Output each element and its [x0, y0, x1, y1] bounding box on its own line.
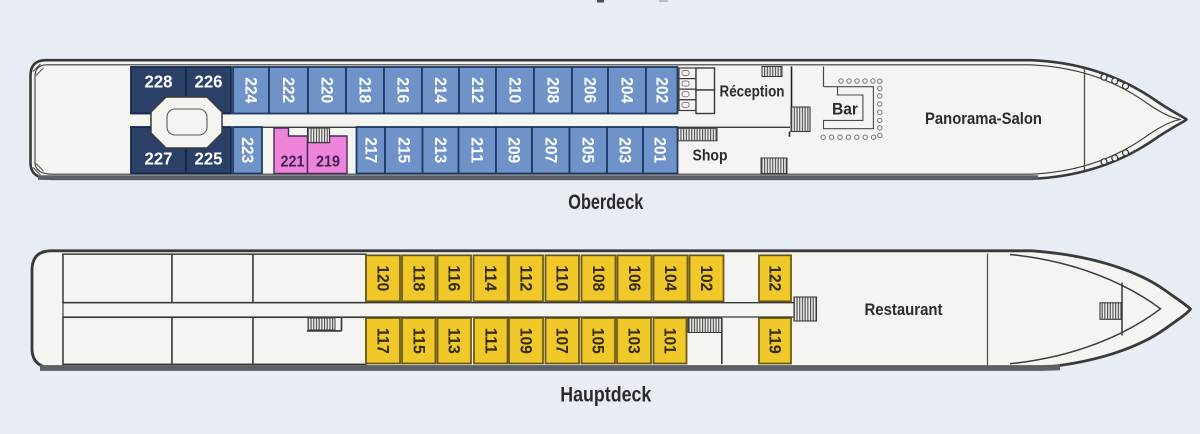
svg-text:119: 119	[766, 328, 785, 354]
svg-text:Oberdeck: Oberdeck	[568, 191, 643, 214]
svg-text:206: 206	[581, 77, 600, 103]
svg-text:203: 203	[616, 137, 635, 163]
svg-text:222: 222	[279, 77, 298, 103]
svg-text:201: 201	[651, 137, 670, 163]
svg-text:217: 217	[361, 137, 380, 163]
svg-text:107: 107	[553, 328, 572, 354]
svg-text:210: 210	[506, 77, 525, 103]
svg-text:105: 105	[589, 328, 608, 354]
svg-text:116: 116	[445, 265, 464, 291]
svg-text:110: 110	[553, 265, 572, 291]
svg-text:204: 204	[618, 77, 637, 103]
svg-text:214: 214	[431, 77, 450, 103]
svg-text:202: 202	[652, 77, 671, 103]
svg-text:209: 209	[505, 137, 524, 163]
svg-text:114: 114	[481, 265, 500, 292]
svg-text:227: 227	[145, 149, 173, 169]
svg-text:207: 207	[541, 137, 560, 163]
svg-text:Hauptdeck: Hauptdeck	[560, 384, 651, 407]
svg-text:Restaurant: Restaurant	[865, 301, 943, 319]
svg-text:218: 218	[356, 77, 375, 103]
svg-text:205: 205	[579, 137, 598, 163]
svg-text:208: 208	[544, 77, 563, 103]
svg-text:103: 103	[625, 328, 644, 354]
svg-text:109: 109	[517, 328, 536, 354]
svg-text:Bar: Bar	[832, 100, 858, 119]
svg-text:Panorama-Salon: Panorama-Salon	[925, 110, 1042, 128]
svg-text:213: 213	[431, 137, 450, 163]
svg-text:216: 216	[394, 77, 413, 103]
svg-text:211: 211	[468, 137, 487, 163]
svg-text:115: 115	[409, 328, 428, 354]
svg-text:223: 223	[238, 137, 257, 163]
svg-text:101: 101	[661, 328, 680, 354]
svg-text:215: 215	[394, 137, 413, 163]
svg-text:111: 111	[481, 328, 500, 354]
svg-text:228: 228	[145, 72, 173, 92]
svg-text:112: 112	[517, 265, 536, 291]
svg-text:221: 221	[281, 154, 305, 171]
svg-text:117: 117	[374, 328, 393, 354]
svg-text:219: 219	[316, 154, 340, 171]
svg-text:225: 225	[195, 149, 223, 169]
svg-text:Shop: Shop	[693, 148, 728, 165]
svg-text:212: 212	[468, 77, 487, 103]
svg-text:104: 104	[661, 265, 680, 291]
svg-text:113: 113	[445, 328, 464, 354]
svg-text:122: 122	[766, 265, 785, 291]
svg-text:226: 226	[195, 72, 223, 92]
svg-text:220: 220	[318, 77, 337, 103]
svg-text:118: 118	[409, 265, 428, 291]
svg-text:120: 120	[374, 265, 393, 291]
svg-text:224: 224	[242, 77, 261, 103]
svg-text:Réception: Réception	[720, 84, 785, 101]
svg-text:102: 102	[697, 265, 716, 291]
svg-text:106: 106	[625, 265, 644, 291]
svg-text:108: 108	[589, 265, 608, 291]
